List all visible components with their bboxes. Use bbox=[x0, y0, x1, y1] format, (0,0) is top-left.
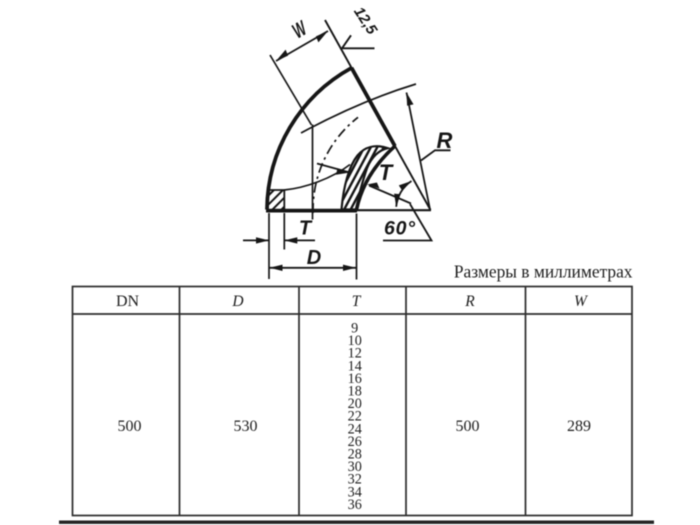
svg-text:R: R bbox=[464, 293, 475, 310]
svg-text:500: 500 bbox=[118, 418, 142, 435]
svg-text:W: W bbox=[574, 293, 589, 310]
svg-text:289: 289 bbox=[567, 418, 591, 435]
svg-text:D: D bbox=[231, 293, 243, 310]
svg-text:W: W bbox=[288, 16, 312, 44]
svg-text:36: 36 bbox=[348, 497, 362, 513]
svg-text:530: 530 bbox=[234, 418, 258, 435]
svg-text:60°: 60° bbox=[384, 218, 416, 240]
svg-text:D: D bbox=[307, 247, 321, 269]
svg-text:DN: DN bbox=[116, 293, 140, 310]
svg-text:T: T bbox=[299, 218, 313, 240]
svg-text:Размеры в миллиметрах: Размеры в миллиметрах bbox=[454, 262, 633, 282]
svg-text:12,5: 12,5 bbox=[350, 4, 381, 38]
svg-text:500: 500 bbox=[456, 418, 480, 435]
svg-text:T: T bbox=[379, 160, 394, 185]
svg-text:T: T bbox=[352, 293, 362, 310]
svg-text:R: R bbox=[437, 128, 453, 153]
